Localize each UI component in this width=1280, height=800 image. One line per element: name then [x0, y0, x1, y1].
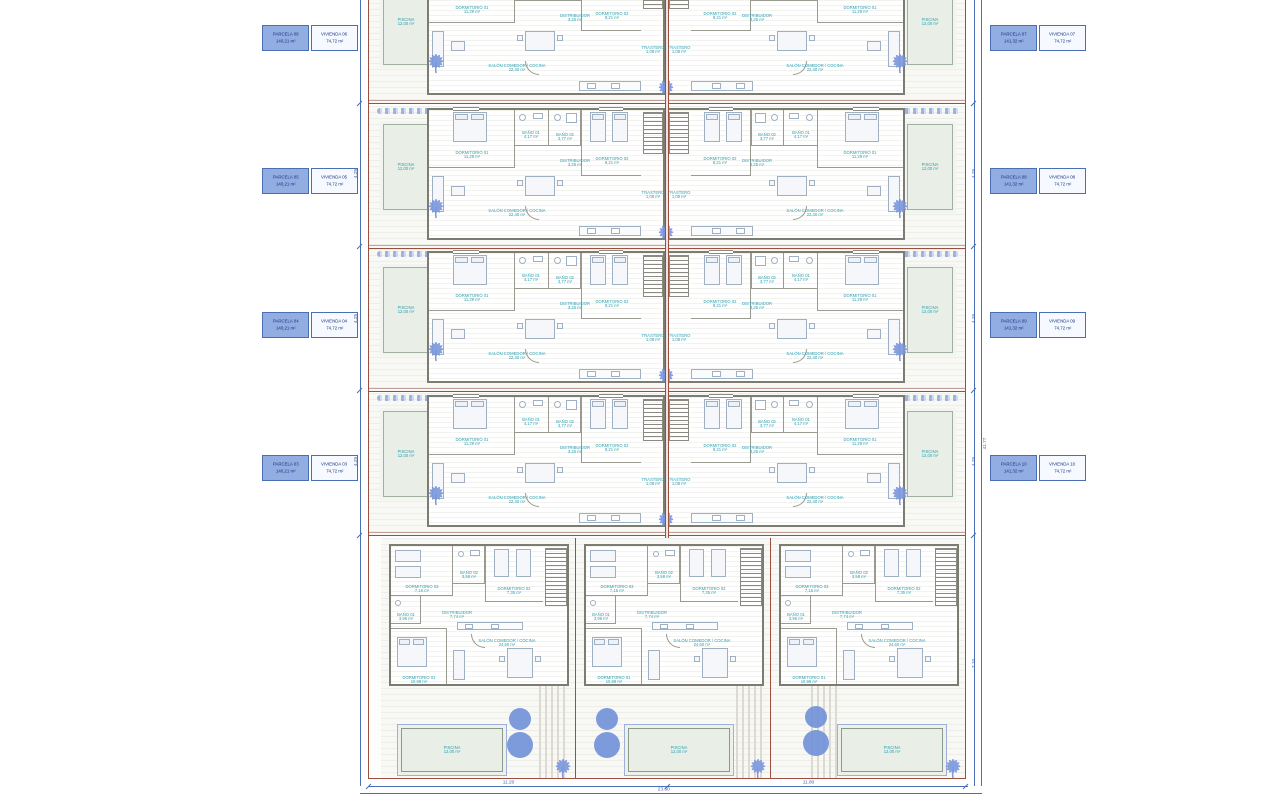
toilet — [806, 257, 813, 264]
unit-slot-left: DORMITORIO 0111,29 m² BAÑO 014,17 m² BAÑ… — [427, 395, 665, 527]
parcel-label-right-4: PARCELA 10141,32 m² VIVIENDA 1074,72 m² — [990, 455, 1086, 481]
parcela-name: PARCELA 06 — [273, 32, 299, 36]
palm-tree-icon — [425, 341, 447, 363]
dim-left-row1: 4.25 — [353, 169, 358, 178]
vivienda-badge: VIVIENDA 0374,72 m² — [311, 455, 358, 481]
chair — [769, 467, 775, 473]
pillow — [728, 257, 740, 263]
parcel-label-right-3: PARCELA 09141,32 m² VIVIENDA 0974,72 m² — [990, 312, 1086, 338]
chair — [535, 656, 541, 662]
chair — [694, 656, 700, 662]
chair — [557, 467, 563, 473]
pillow — [848, 257, 861, 263]
coffee-table — [867, 329, 881, 339]
dining-table — [525, 319, 555, 339]
cooktop — [491, 624, 499, 629]
dining-table — [777, 31, 807, 51]
pillow — [614, 257, 626, 263]
pool-label: PISCINA12,00 m² — [671, 746, 688, 754]
vivienda-area: 74,72 m² — [326, 182, 343, 186]
pillow — [864, 257, 877, 263]
dining-table — [525, 176, 555, 196]
toilet — [554, 114, 561, 121]
room-label: BAÑO 023,58 m² — [450, 571, 488, 579]
toilet — [554, 401, 561, 408]
shower — [755, 400, 766, 410]
bathroom-2: BAÑO 023,77 m² — [549, 397, 581, 433]
room-label: SALÓN COMEDOR / COCINA22,40 m² — [779, 496, 851, 504]
pillow — [848, 401, 861, 407]
vivienda-area: 74,72 m² — [1054, 469, 1071, 473]
vivienda-name: VIVIENDA 06 — [321, 32, 347, 36]
bedroom-3: DORMITORIO 037,16 m² — [781, 546, 843, 596]
toilet — [554, 257, 561, 264]
bathroom-2: BAÑO 023,77 m² — [751, 0, 783, 1]
stairs — [643, 255, 663, 297]
room-label: DISTRIBUIDOR7,74 m² — [824, 611, 870, 619]
single-bed — [590, 550, 616, 562]
toilet — [771, 257, 778, 264]
room-label: BAÑO 014,17 m² — [512, 418, 550, 426]
room-label: DORMITORIO 037,16 m² — [790, 585, 834, 593]
cooktop — [712, 228, 721, 234]
pillow — [864, 401, 877, 407]
dim-right-row2: 4.25 — [971, 314, 976, 323]
palm-tree-icon — [425, 485, 447, 507]
chair — [517, 35, 523, 41]
single-bed — [785, 550, 811, 562]
kitchen-sink — [465, 624, 473, 629]
tree-icon — [596, 708, 618, 730]
parcela-badge: PARCELA 10141,32 m² — [990, 455, 1037, 481]
pool-label: PISCINA12,00 m² — [922, 163, 939, 171]
single-bed — [711, 549, 726, 577]
room-label: BAÑO 023,58 m² — [840, 571, 878, 579]
pool: PISCINA12,00 m² — [628, 728, 730, 772]
parcela-badge: PARCELA 06140,21 m² — [262, 25, 309, 51]
pillow — [614, 401, 626, 407]
parcel-label-left-3: PARCELA 04140,21 m² VIVIENDA 0474,72 m² — [262, 312, 358, 338]
room-label: DISTRIBUIDOR7,74 m² — [629, 611, 675, 619]
kitchen-sink — [855, 624, 863, 629]
pool: PISCINA12,00 m² — [841, 728, 943, 772]
cooktop — [611, 83, 620, 89]
unit-slot-left: DORMITORIO 0111,29 m² BAÑO 014,17 m² BAÑ… — [427, 108, 665, 240]
pool-label: PISCINA12,00 m² — [444, 746, 461, 754]
parcel-label-left-4: PARCELA 03140,21 m² VIVIENDA 0374,72 m² — [262, 455, 358, 481]
stairs — [643, 399, 663, 441]
chair — [557, 180, 563, 186]
room-label: DISTRIBUIDOR7,74 m² — [434, 611, 480, 619]
chair — [809, 180, 815, 186]
room-label: SALÓN COMEDOR / COCINA22,40 m² — [481, 496, 553, 504]
stairs — [740, 548, 762, 606]
room-label: BAÑO 023,77 m² — [748, 133, 786, 141]
cooktop — [712, 83, 721, 89]
dwelling-unit: DORMITORIO 0111,29 m² BAÑO 014,17 m² BAÑ… — [667, 0, 905, 95]
pillow — [608, 639, 619, 645]
bathroom-2: BAÑO 023,77 m² — [751, 397, 783, 433]
dimension-line-bottom-2 — [360, 793, 982, 794]
palm-spot — [889, 485, 911, 507]
unit-slot-right: DORMITORIO 0111,29 m² BAÑO 014,17 m² BAÑ… — [667, 0, 905, 95]
room-label: DORMITORIO 0111,29 m² — [450, 151, 494, 159]
pool-label: PISCINA12,00 m² — [398, 306, 415, 314]
vivienda-name: VIVIENDA 03 — [321, 462, 347, 466]
room-label: DISTRIBUIDOR3,25 m² — [552, 14, 598, 22]
toilet — [806, 114, 813, 121]
bathroom-1: BAÑO 014,17 m² — [783, 397, 817, 433]
sofa — [453, 650, 465, 680]
single-bed — [395, 550, 421, 562]
dwelling-unit-bottom: DORMITORIO 037,16 m² BAÑO 013,96 m² BAÑO… — [771, 538, 966, 779]
bedroom-1: DORMITORIO 0110,98 m² — [781, 628, 837, 684]
dwelling-unit: DORMITORIO 0111,29 m² BAÑO 014,17 m² BAÑ… — [667, 108, 905, 240]
single-bed — [884, 549, 899, 577]
coffee-table — [451, 473, 465, 483]
unit-slot-right: DORMITORIO 0111,29 m² BAÑO 014,17 m² BAÑ… — [667, 108, 905, 240]
parcela-area: 141,32 m² — [1004, 182, 1024, 186]
palm-spot — [889, 53, 911, 75]
palm-tree-icon — [747, 758, 769, 779]
toilet — [806, 401, 813, 408]
chair — [809, 323, 815, 329]
house-outline: DORMITORIO 037,16 m² BAÑO 013,96 m² BAÑO… — [779, 544, 959, 686]
bathroom-1: BAÑO 013,96 m² — [391, 596, 421, 624]
dining-table — [777, 319, 807, 339]
dim-right-row1: 4.25 — [971, 169, 976, 178]
stairs — [545, 548, 567, 606]
single-bed — [785, 566, 811, 578]
room-label: BAÑO 014,17 m² — [512, 274, 550, 282]
palm-tree-icon — [552, 758, 574, 779]
room-label: BAÑO 023,77 m² — [546, 420, 584, 428]
toilet — [395, 600, 401, 606]
parcela-badge: PARCELA 03140,21 m² — [262, 455, 309, 481]
pillow — [706, 401, 718, 407]
bathroom-1: BAÑO 014,17 m² — [515, 253, 549, 289]
dining-table — [897, 648, 923, 678]
chair — [889, 656, 895, 662]
toilet — [458, 551, 464, 557]
bottom-section: DORMITORIO 037,16 m² BAÑO 013,96 m² BAÑO… — [381, 538, 966, 779]
pool: PISCINA12,00 m² — [383, 411, 429, 497]
shower — [755, 113, 766, 123]
pool-label: PISCINA12,00 m² — [398, 163, 415, 171]
toilet — [519, 257, 526, 264]
pillow — [728, 114, 740, 120]
room-label: DORMITORIO 0111,29 m² — [838, 151, 882, 159]
room-label: BAÑO 023,77 m² — [748, 276, 786, 284]
sink — [789, 400, 799, 406]
coffee-table — [867, 473, 881, 483]
vivienda-area: 74,72 m² — [326, 326, 343, 330]
vivienda-area: 74,72 m² — [1054, 39, 1071, 43]
dimension-line-left — [360, 0, 361, 786]
palm-spot — [425, 53, 447, 75]
vivienda-name: VIVIENDA 07 — [1049, 32, 1075, 36]
room-label: DISTRIBUIDOR3,25 m² — [552, 159, 598, 167]
tree-icon — [805, 706, 827, 728]
dwelling-unit: DORMITORIO 0111,29 m² BAÑO 014,17 m² BAÑ… — [427, 0, 665, 95]
shower — [566, 256, 577, 266]
vivienda-name: VIVIENDA 10 — [1049, 462, 1075, 466]
chair — [557, 323, 563, 329]
room-label: BAÑO 014,17 m² — [782, 131, 820, 139]
bathroom-2: BAÑO 023,58 m² — [648, 546, 680, 584]
bedroom-3: DORMITORIO 037,16 m² — [586, 546, 648, 596]
pool: PISCINA12,00 m² — [907, 411, 953, 497]
parcela-area: 141,32 m² — [1004, 39, 1024, 43]
bathroom-2: BAÑO 023,77 m² — [751, 253, 783, 289]
parcela-area: 140,21 m² — [276, 326, 296, 330]
cooktop — [712, 371, 721, 377]
single-bed — [906, 549, 921, 577]
room-label: DISTRIBUIDOR3,25 m² — [734, 159, 780, 167]
vivienda-area: 74,72 m² — [326, 469, 343, 473]
parcela-name: PARCELA 09 — [1001, 319, 1027, 323]
bedroom-1: DORMITORIO 0111,29 m² — [429, 0, 515, 23]
kitchen-sink — [736, 228, 745, 234]
room-label: SALÓN COMEDOR / COCINA22,40 m² — [779, 209, 851, 217]
coffee-table — [451, 41, 465, 51]
room-label: DORMITORIO 0111,29 m² — [450, 6, 494, 14]
bedroom-1: DORMITORIO 0111,29 m² — [817, 253, 903, 311]
room-label: BAÑO 023,77 m² — [748, 420, 786, 428]
bathroom-2: BAÑO 023,77 m² — [549, 253, 581, 289]
room-label: BAÑO 013,96 m² — [582, 613, 620, 621]
room-label: DORMITORIO 0110,98 m² — [397, 676, 441, 684]
single-bed — [689, 549, 704, 577]
bathroom-2: BAÑO 023,58 m² — [843, 546, 875, 584]
vivienda-badge: VIVIENDA 0674,72 m² — [311, 25, 358, 51]
dim-right-bottom: 7.10 — [971, 659, 976, 668]
sink — [789, 256, 799, 262]
room-label: DORMITORIO 0111,29 m² — [838, 294, 882, 302]
room-label: DORMITORIO 037,16 m² — [595, 585, 639, 593]
pillow — [803, 639, 814, 645]
dim-left-row2: 4.25 — [353, 314, 358, 323]
dim-right-total: 41.77 — [982, 438, 987, 450]
room-label: SALÓN COMEDOR / COCINA22,40 m² — [481, 64, 553, 72]
room-label: SALÓN COMEDOR / COCINA22,40 m² — [481, 352, 553, 360]
pillow — [455, 114, 468, 120]
room-label: DORMITORIO 0110,98 m² — [787, 676, 831, 684]
sink — [533, 400, 543, 406]
chair — [517, 180, 523, 186]
pillow — [864, 114, 877, 120]
chair — [517, 467, 523, 473]
pillow — [471, 401, 484, 407]
tree-icon — [803, 730, 829, 756]
chair — [499, 656, 505, 662]
pool-label: PISCINA12,00 m² — [884, 746, 901, 754]
parcela-area: 140,21 m² — [276, 182, 296, 186]
pillow — [848, 114, 861, 120]
dim-right-row3: 4.25 — [971, 457, 976, 466]
bedroom-1: DORMITORIO 0111,29 m² — [817, 0, 903, 23]
chair — [730, 656, 736, 662]
vivienda-badge: VIVIENDA 0974,72 m² — [1039, 312, 1086, 338]
coffee-table — [867, 41, 881, 51]
bedroom-2: DORMITORIO 027,35 m² — [485, 546, 543, 602]
cooktop — [611, 371, 620, 377]
room-label: DISTRIBUIDOR3,25 m² — [734, 446, 780, 454]
parcela-badge: PARCELA 09141,32 m² — [990, 312, 1037, 338]
single-bed — [494, 549, 509, 577]
pillow — [614, 114, 626, 120]
room-label: DORMITORIO 0111,29 m² — [450, 438, 494, 446]
palm-spot — [889, 198, 911, 220]
bedroom-1: DORMITORIO 0111,29 m² — [429, 110, 515, 168]
room-label: BAÑO 023,77 m² — [546, 133, 584, 141]
room-label: DISTRIBUIDOR3,25 m² — [734, 302, 780, 310]
stairs — [935, 548, 957, 606]
bathroom-1: BAÑO 014,17 m² — [783, 0, 817, 1]
stairs — [669, 255, 689, 297]
pool: PISCINA12,00 m² — [907, 124, 953, 210]
cooktop — [881, 624, 889, 629]
bedroom-1: DORMITORIO 0110,98 m² — [391, 628, 447, 684]
sofa — [843, 650, 855, 680]
dining-table — [777, 463, 807, 483]
cooktop — [712, 515, 721, 521]
chair — [925, 656, 931, 662]
parcel-label-left-2: PARCELA 05140,21 m² VIVIENDA 0574,72 m² — [262, 168, 358, 194]
sink — [533, 256, 543, 262]
shower — [566, 400, 577, 410]
dim-bottom-seg2: 11.80 — [803, 780, 815, 785]
palm-tree-icon — [425, 198, 447, 220]
garden: PISCINA12,00 m² — [381, 686, 576, 779]
parcela-name: PARCELA 10 — [1001, 462, 1027, 466]
toilet — [519, 114, 526, 121]
parcela-area: 140,21 m² — [276, 469, 296, 473]
sink — [860, 550, 870, 556]
bathroom-1: BAÑO 014,17 m² — [515, 0, 549, 1]
pillow — [471, 114, 484, 120]
pool-label: PISCINA12,00 m² — [922, 450, 939, 458]
chair — [769, 323, 775, 329]
room-label: BAÑO 013,96 m² — [777, 613, 815, 621]
bathroom-1: BAÑO 014,17 m² — [783, 110, 817, 146]
pool: PISCINA12,00 m² — [401, 728, 503, 772]
toilet — [771, 114, 778, 121]
vivienda-badge: VIVIENDA 0774,72 m² — [1039, 25, 1086, 51]
pillow — [399, 639, 410, 645]
dwelling-unit-bottom: DORMITORIO 037,16 m² BAÑO 013,96 m² BAÑO… — [576, 538, 771, 779]
house-outline: DORMITORIO 037,16 m² BAÑO 013,96 m² BAÑO… — [584, 544, 764, 686]
palm-tree-icon — [889, 198, 911, 220]
pool-label: PISCINA12,00 m² — [398, 450, 415, 458]
kitchen-sink — [736, 515, 745, 521]
dining-table — [525, 463, 555, 483]
room-label: BAÑO 023,58 m² — [645, 571, 683, 579]
parcela-badge: PARCELA 07141,32 m² — [990, 25, 1037, 51]
parcela-badge: PARCELA 04140,21 m² — [262, 312, 309, 338]
pillow — [413, 639, 424, 645]
room-label: SALÓN COMEDOR / COCINA24,60 m² — [861, 639, 933, 647]
chair — [809, 467, 815, 473]
tree-icon — [594, 732, 620, 758]
bathroom-2: BAÑO 023,77 m² — [549, 0, 581, 1]
room-label: DORMITORIO 0111,29 m² — [838, 6, 882, 14]
room-label: DORMITORIO 027,35 m² — [687, 587, 731, 595]
room-label: SALÓN COMEDOR / COCINA24,60 m² — [666, 639, 738, 647]
room-label: BAÑO 013,96 m² — [387, 613, 425, 621]
pool: PISCINA12,00 m² — [907, 0, 953, 65]
palm-spot — [942, 758, 964, 779]
single-bed — [590, 566, 616, 578]
palm-spot — [425, 341, 447, 363]
bedroom-2: DORMITORIO 027,35 m² — [875, 546, 933, 602]
vivienda-area: 74,72 m² — [326, 39, 343, 43]
room-label: DORMITORIO 027,35 m² — [882, 587, 926, 595]
parcela-name: PARCELA 07 — [1001, 32, 1027, 36]
pool-label: PISCINA12,00 m² — [922, 306, 939, 314]
parcela-badge: PARCELA 08141,32 m² — [990, 168, 1037, 194]
coffee-table — [451, 186, 465, 196]
dining-table — [525, 31, 555, 51]
vivienda-name: VIVIENDA 08 — [1049, 175, 1075, 179]
palm-tree-icon — [889, 341, 911, 363]
vivienda-badge: VIVIENDA 0874,72 m² — [1039, 168, 1086, 194]
vivienda-badge: VIVIENDA 0474,72 m² — [311, 312, 358, 338]
palm-spot — [889, 341, 911, 363]
palm-spot — [552, 758, 574, 779]
parcela-name: PARCELA 05 — [273, 175, 299, 179]
parcel-label-right-2: PARCELA 08141,32 m² VIVIENDA 0874,72 m² — [990, 168, 1086, 194]
room-label: DISTRIBUIDOR3,25 m² — [552, 302, 598, 310]
dwelling-unit: DORMITORIO 0111,29 m² BAÑO 014,17 m² BAÑ… — [427, 108, 665, 240]
parcela-name: PARCELA 04 — [273, 319, 299, 323]
parcela-area: 140,21 m² — [276, 39, 296, 43]
palm-spot — [425, 198, 447, 220]
chair — [517, 323, 523, 329]
vivienda-name: VIVIENDA 09 — [1049, 319, 1075, 323]
vivienda-badge: VIVIENDA 0574,72 m² — [311, 168, 358, 194]
chair — [809, 35, 815, 41]
house-outline: DORMITORIO 037,16 m² BAÑO 013,96 m² BAÑO… — [389, 544, 569, 686]
dim-left-row3: 4.25 — [353, 457, 358, 466]
garden: PISCINA12,00 m² — [576, 686, 771, 779]
bathroom-2: BAÑO 023,77 m² — [751, 110, 783, 146]
plot-boundary: PISCINA12,00 m² PISCINA12,00 m² DORMITOR… — [368, 0, 966, 779]
palm-spot — [747, 758, 769, 779]
chair — [769, 180, 775, 186]
pool-label: PISCINA12,00 m² — [398, 18, 415, 26]
bedroom-1: DORMITORIO 0111,29 m² — [429, 397, 515, 455]
pillow — [789, 639, 800, 645]
stairs — [643, 0, 663, 9]
palm-tree-icon — [889, 53, 911, 75]
parcela-badge: PARCELA 05140,21 m² — [262, 168, 309, 194]
cooktop — [611, 228, 620, 234]
dwelling-unit: DORMITORIO 0111,29 m² BAÑO 014,17 m² BAÑ… — [427, 251, 665, 383]
bedroom-1: DORMITORIO 0111,29 m² — [817, 110, 903, 168]
site-plan: PARCELA 06140,21 m² VIVIENDA 0674,72 m² … — [0, 0, 1280, 800]
dwelling-unit: DORMITORIO 0111,29 m² BAÑO 014,17 m² BAÑ… — [427, 395, 665, 527]
room-label: DISTRIBUIDOR3,25 m² — [734, 14, 780, 22]
kitchen-sink — [660, 624, 668, 629]
sofa — [648, 650, 660, 680]
vivienda-name: VIVIENDA 04 — [321, 319, 347, 323]
pillow — [706, 257, 718, 263]
pillow — [728, 401, 740, 407]
toilet — [848, 551, 854, 557]
unit-slot-left: DORMITORIO 0111,29 m² BAÑO 014,17 m² BAÑ… — [427, 251, 665, 383]
dining-table — [702, 648, 728, 678]
